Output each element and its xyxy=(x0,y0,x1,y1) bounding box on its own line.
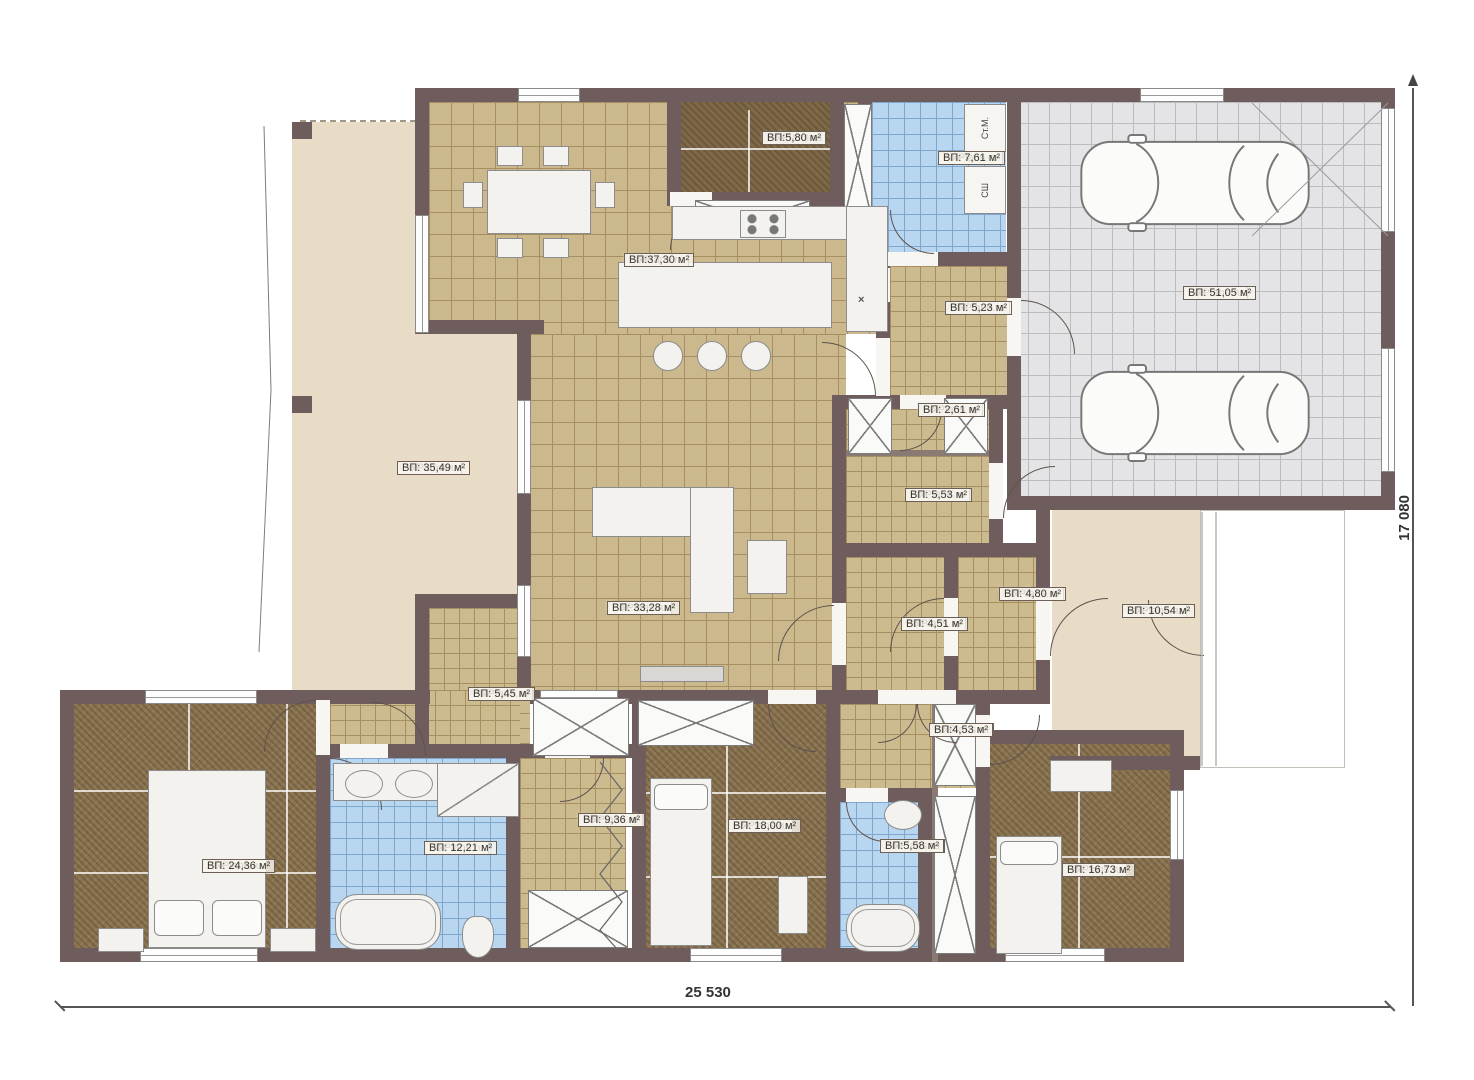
wall xyxy=(830,102,844,206)
furniture-sink xyxy=(345,770,383,798)
wall xyxy=(826,690,840,962)
room-area: ВП: 12,21 м² xyxy=(424,841,497,855)
north-arrow-icon xyxy=(1408,74,1418,86)
floor-seam xyxy=(681,148,830,150)
door-opening xyxy=(989,463,1003,519)
furniture-shower xyxy=(437,763,519,817)
room-area: ВП: 24,36 м² xyxy=(202,859,275,873)
room-area: ВП:5,80 м² xyxy=(762,131,826,145)
furniture-pillow xyxy=(154,900,204,936)
window xyxy=(1381,108,1395,232)
furniture-stove xyxy=(740,210,786,238)
furniture-ctable xyxy=(747,540,787,594)
room-area: ВП:5,58 м² xyxy=(880,839,944,853)
door-opening xyxy=(316,700,330,755)
room-area: ВП: 16,73 м² xyxy=(1062,863,1135,877)
column xyxy=(292,122,312,139)
door-opening xyxy=(876,338,890,396)
closet-x xyxy=(848,398,892,454)
floor-plan-canvas: 25 530 17 080 ×Ст.М.СШТерассаFixPlans.ru… xyxy=(0,0,1474,1080)
furniture-pillow xyxy=(654,784,708,810)
kitchen-sink-symbol: × xyxy=(858,294,878,310)
closet-x xyxy=(934,796,976,954)
furniture-counter xyxy=(846,206,888,332)
column xyxy=(292,396,312,413)
furniture-table xyxy=(487,170,591,234)
room-floor-tambur xyxy=(958,557,1036,690)
door-opening xyxy=(878,690,956,704)
closet-x xyxy=(638,700,754,746)
furniture-pillow xyxy=(1000,841,1058,865)
wall xyxy=(918,802,932,948)
furniture-chair xyxy=(463,182,483,208)
furniture-sink xyxy=(395,770,433,798)
window xyxy=(517,585,531,657)
driveway-outline xyxy=(1200,510,1345,768)
door-opening xyxy=(768,690,816,704)
wall xyxy=(417,320,544,334)
room-area: ВП: 10,54 м² xyxy=(1122,604,1195,618)
furniture-nstand xyxy=(778,876,808,934)
wall xyxy=(832,543,1050,557)
bottom-dimension-line xyxy=(60,1006,1390,1008)
appliance-box: СШ xyxy=(964,166,1006,214)
furniture-car xyxy=(1076,364,1314,462)
furniture-chair xyxy=(497,146,523,166)
room-area: ВП: 4,80 м² xyxy=(999,587,1066,601)
room-floor-kabinet xyxy=(681,102,830,192)
room-area: ВП: 2,61 м² xyxy=(918,403,985,417)
room-area: ВП: 7,61 м² xyxy=(938,151,1005,165)
wall xyxy=(60,690,74,962)
furniture-tv xyxy=(640,666,724,682)
room-area: ВП: 9,36 м² xyxy=(578,813,645,827)
room-area: ВП: 5,53 м² xyxy=(905,488,972,502)
door-opening xyxy=(1036,598,1050,660)
room-area: ВП: 18,00 м² xyxy=(728,819,801,833)
window xyxy=(145,690,257,704)
window xyxy=(518,88,580,102)
room-floor-hall523 xyxy=(890,266,1007,395)
room-area: ВП:37,30 м² xyxy=(624,253,694,267)
closet-x xyxy=(844,104,872,216)
furniture-nstand xyxy=(1050,760,1112,792)
closet-x xyxy=(528,890,628,948)
furniture-pillow xyxy=(212,900,262,936)
furniture-bath xyxy=(846,904,920,952)
closet-x xyxy=(533,698,629,756)
appliance-label: Ст.М. xyxy=(980,117,990,139)
wall xyxy=(667,102,681,206)
wall xyxy=(415,594,530,608)
door-arc xyxy=(822,342,876,396)
furniture-chair xyxy=(595,182,615,208)
bottom-dimension-label: 25 530 xyxy=(685,984,731,1001)
furniture-sink xyxy=(884,800,922,830)
furniture-nstand xyxy=(270,928,316,952)
door-opening xyxy=(888,252,938,266)
room-area: ВП: 35,49 м² xyxy=(397,461,470,475)
furniture-island xyxy=(618,262,832,328)
floor-seam xyxy=(748,110,750,196)
door-opening xyxy=(832,603,846,665)
furniture-sofa xyxy=(690,487,734,613)
furniture-toilet xyxy=(462,916,494,958)
furniture-chair xyxy=(543,146,569,166)
furniture-stool xyxy=(653,341,683,371)
window xyxy=(1140,88,1224,102)
appliance-label: СШ xyxy=(980,183,990,198)
room-area: ВП: 51,05 м² xyxy=(1183,286,1256,300)
room-area: ВП: 5,45 м² xyxy=(468,687,535,701)
right-dimension-line xyxy=(1412,88,1414,1006)
room-area: ВП:4,53 м² xyxy=(929,723,993,737)
furniture-chair xyxy=(543,238,569,258)
furniture-nstand xyxy=(98,928,144,952)
room-area: ВП: 5,23 м² xyxy=(945,301,1012,315)
window xyxy=(415,215,429,333)
window xyxy=(140,948,258,962)
furniture-bath xyxy=(335,894,441,950)
window xyxy=(1381,348,1395,472)
appliance-box: Ст.М. xyxy=(964,104,1006,152)
furniture-car xyxy=(1076,134,1314,232)
door-opening xyxy=(846,788,888,802)
window xyxy=(1170,790,1184,860)
window xyxy=(517,400,531,494)
furniture-stool xyxy=(697,341,727,371)
room-area: ВП: 4,51 м² xyxy=(901,617,968,631)
room-area: ВП: 33,28 м² xyxy=(607,601,680,615)
furniture-chair xyxy=(497,238,523,258)
window xyxy=(690,948,782,962)
terrace-edge-line xyxy=(259,126,271,652)
wall xyxy=(1007,496,1395,510)
right-dimension-label: 17 080 xyxy=(1396,495,1413,541)
furniture-stool xyxy=(741,341,771,371)
